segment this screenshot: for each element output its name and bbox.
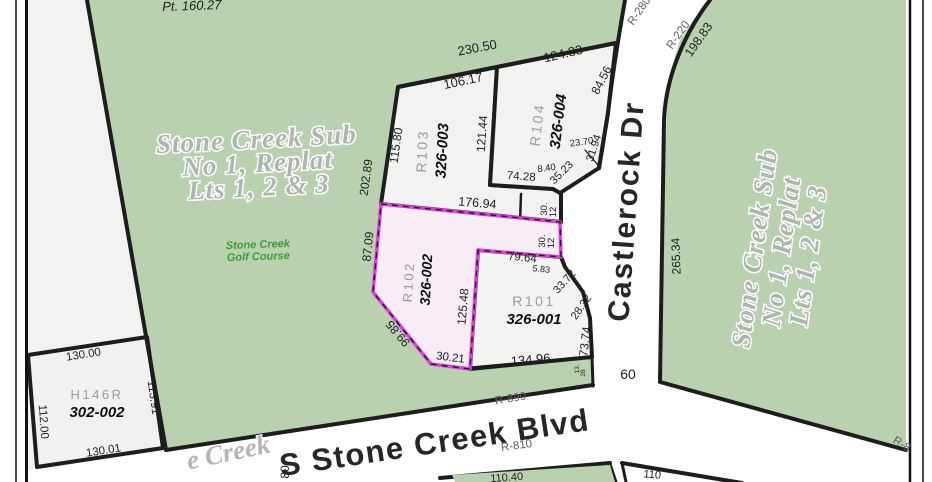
dim-step2-b: 12	[546, 238, 557, 249]
dim-green-w: 265.34	[668, 237, 683, 274]
boundary-bottom-divider-b	[622, 463, 626, 482]
dim-r103-e: 121.44	[474, 115, 491, 153]
dim-road-width: 60	[620, 366, 636, 382]
dim-bottom-lot2: 110	[643, 468, 662, 481]
golf-course-label: Stone Creek Golf Course	[226, 238, 292, 264]
road-blvd-south-edge-e	[622, 463, 742, 482]
golf-line2: Golf Course	[227, 250, 290, 264]
dim-step1-b: 12	[548, 207, 559, 218]
boundary-sliver-east	[592, 357, 593, 386]
parcel-map: Pt. 160.27 Stone Creek Sub No 1, Replat …	[0, 0, 932, 482]
dim-bottom-lot1: 110.40	[490, 471, 524, 482]
parcel-bottom-green[interactable]	[452, 465, 615, 482]
dim-r101-jog: 5.83	[532, 263, 550, 275]
pt-note: Pt. 160.27	[162, 0, 223, 14]
parcel-apn-r101: 326-001	[506, 311, 561, 328]
parcel-apn-h146r: 302-002	[69, 404, 125, 421]
parcel-id-r101: R101	[512, 293, 555, 309]
dim-sliver-b: 28	[580, 369, 587, 377]
map-canvas: Pt. 160.27 Stone Creek Sub No 1, Replat …	[0, 0, 932, 482]
parcel-id-r103: R103	[413, 129, 431, 173]
dim-h-w: 112.00	[36, 404, 50, 439]
dim-r104-s: 74.28	[506, 170, 536, 184]
parcel-id-r102: R102	[400, 261, 417, 303]
street-castlerock-label: Castlerock Dr	[602, 100, 650, 323]
parcel-apn-r102: 326-002	[417, 253, 436, 305]
parcel-apn-r103: 326-003	[433, 122, 453, 179]
parcel-id-h146r: H146R	[71, 387, 124, 402]
roadref-r280: R-280	[626, 0, 654, 28]
